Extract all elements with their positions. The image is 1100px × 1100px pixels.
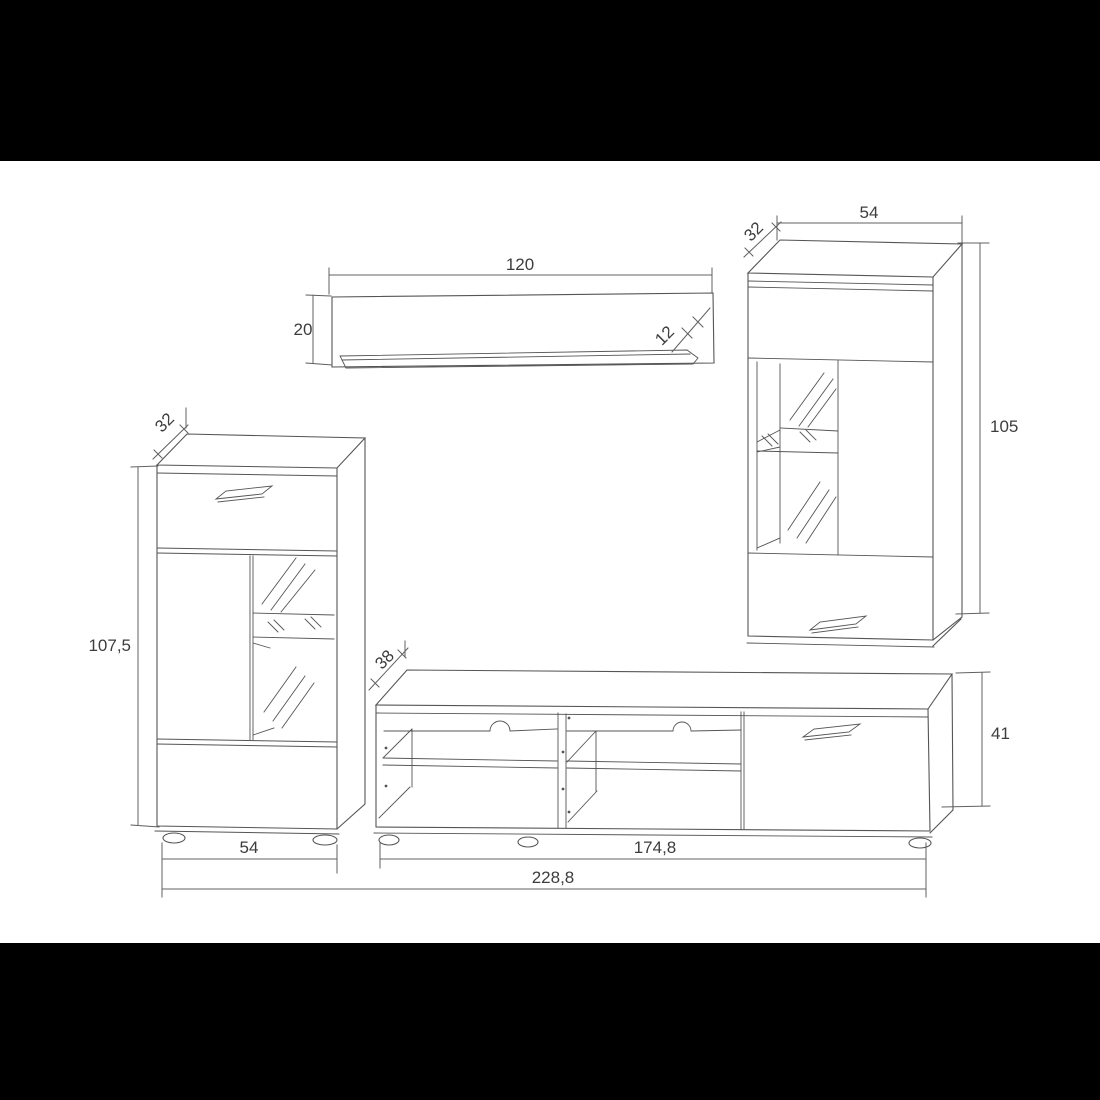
- cabinet-foot-left: [163, 833, 185, 843]
- dim-shelf-height-label: 20: [294, 320, 313, 339]
- tv-stand-foot-right: [909, 838, 931, 848]
- dim-wall-cabinet-width-label: 54: [860, 203, 879, 222]
- furniture-dimension-diagram: 120 20 12 54: [0, 0, 1100, 1100]
- letterbox-bottom: [0, 943, 1100, 1100]
- dim-cabinet-height-label: 107,5: [88, 636, 131, 655]
- page-background: [0, 0, 1100, 1100]
- technical-drawing-canvas: 120 20 12 54: [0, 0, 1100, 1100]
- dim-cabinet-width-label: 54: [240, 838, 259, 857]
- tv-stand-foot-middle: [518, 837, 538, 847]
- dim-tv-height-label: 41: [991, 724, 1010, 743]
- dim-tv-width-label: 174,8: [634, 838, 677, 857]
- tv-stand-foot-left: [379, 835, 399, 845]
- dim-shelf-width-label: 120: [506, 255, 534, 274]
- letterbox-top: [0, 0, 1100, 161]
- dim-wall-cabinet-height-label: 105: [990, 417, 1018, 436]
- cabinet-foot-right: [313, 835, 337, 845]
- dim-total-width-label: 228,8: [532, 868, 575, 887]
